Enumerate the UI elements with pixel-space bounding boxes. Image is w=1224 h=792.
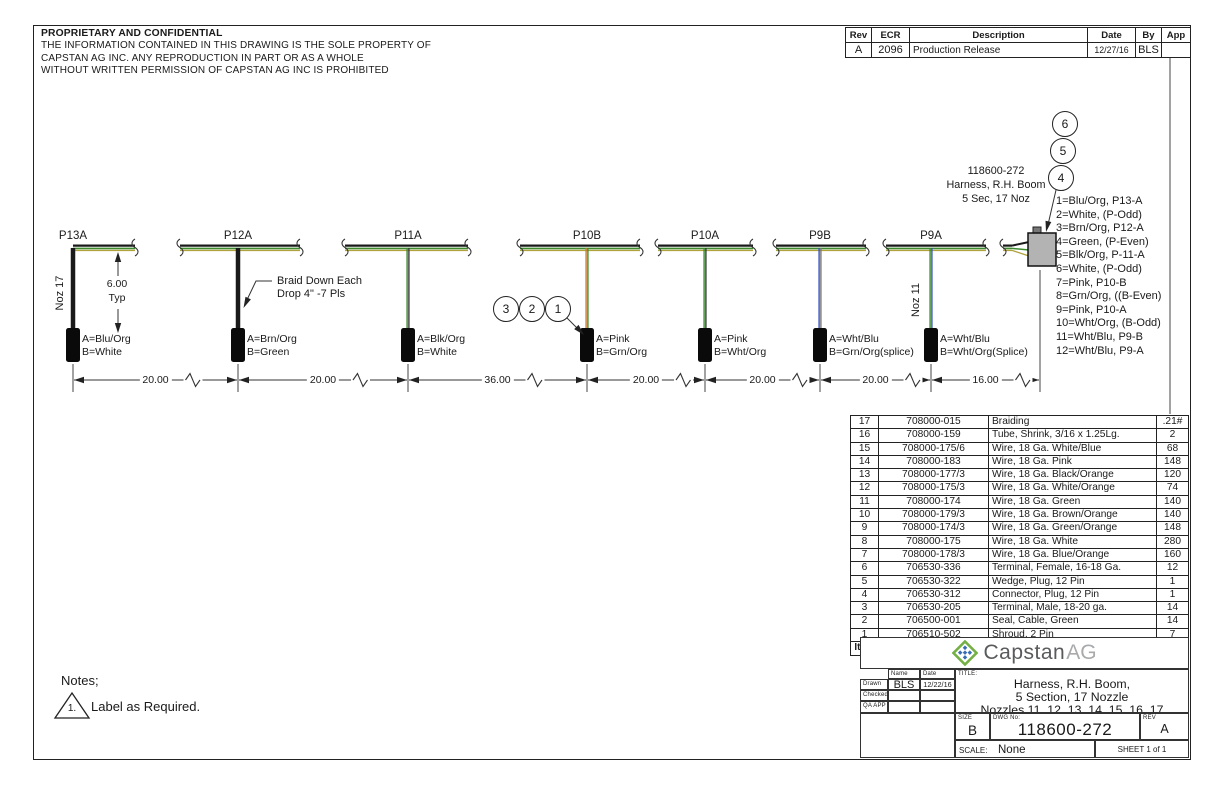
drawn-name-cell: BLS	[888, 679, 920, 690]
name-column-header: Name	[888, 669, 920, 679]
bom-cell: 148	[1157, 522, 1189, 535]
pin-list-entry: 9=Pink, P10-A	[1056, 304, 1161, 318]
drawn-label-cell: Drawn	[860, 679, 888, 690]
bom-cell: 706530-322	[879, 576, 989, 589]
drop-label: P11A	[394, 230, 421, 242]
rev-col-header: ECR	[872, 28, 910, 43]
rev-col-header: By	[1136, 28, 1162, 43]
bom-cell: Wire, 18 Ga. White/Orange	[989, 482, 1157, 495]
bom-cell: 140	[1157, 509, 1189, 522]
bom-cell: 140	[1157, 496, 1189, 509]
scale-value: None	[998, 744, 1026, 756]
bom-cell: Wire, 18 Ga. White/Blue	[989, 443, 1157, 456]
rev-col-header: Date	[1088, 28, 1136, 43]
harness-part-label: 118600-272 Harness, R.H. Boom 5 Sec, 17 …	[935, 164, 1057, 206]
bom-cell: 708000-015	[879, 416, 989, 429]
bom-cell: 4	[851, 589, 879, 602]
bill-of-materials-table: 17708000-015Braiding.21#16708000-159Tube…	[850, 415, 1189, 656]
wire-label-a: A=Pink	[596, 333, 630, 345]
bom-cell: 1	[1157, 576, 1189, 589]
bom-cell: 6	[851, 562, 879, 575]
pin-list-entry: 11=Wht/Blu, P9-B	[1056, 331, 1161, 345]
rev-value: A	[1141, 722, 1188, 736]
bom-cell: 9	[851, 522, 879, 535]
bom-cell: 708000-175/3	[879, 482, 989, 495]
dimension-value: 20.00	[746, 374, 778, 386]
dimension-value: 20.00	[139, 374, 171, 386]
wire-label-b: B=Grn/Org	[596, 346, 647, 358]
callout-balloon: 2	[519, 296, 545, 322]
rev-cell: 12/27/16	[1088, 43, 1136, 58]
callout-balloon: 1	[545, 296, 571, 322]
bom-cell: 12	[851, 482, 879, 495]
dimension-value: 16.00	[969, 374, 1001, 386]
bom-cell: 708000-177/3	[879, 469, 989, 482]
rev-cell: Production Release	[910, 43, 1088, 58]
bom-cell: Wire, 18 Ga. Brown/Orange	[989, 509, 1157, 522]
bom-cell: 148	[1157, 456, 1189, 469]
bom-cell: 14	[851, 456, 879, 469]
wire-label-b: B=Wht/Org(Splice)	[940, 346, 1028, 358]
bom-cell: 706530-312	[879, 589, 989, 602]
pin-list: 1=Blu/Org, P13-A2=White, (P-Odd)3=Brn/Or…	[1056, 195, 1161, 358]
bom-cell: 280	[1157, 536, 1189, 549]
drop-label: P9B	[809, 230, 831, 242]
harness-name: Harness, R.H. Boom	[935, 178, 1057, 192]
title-block: CapstanAG Name Date Drawn BLS 12/22/16 C…	[860, 637, 1189, 758]
sheet-cell: SHEET 1 of 1	[1095, 740, 1189, 758]
bom-cell: 708000-174	[879, 496, 989, 509]
pin-list-entry: 1=Blu/Org, P13-A	[1056, 195, 1161, 209]
checked-name-cell	[888, 690, 920, 701]
callout-balloon: 3	[493, 296, 519, 322]
bom-cell: 708000-174/3	[879, 522, 989, 535]
braid-note: Braid Down Each Drop 4" -7 Pls	[277, 275, 362, 301]
bom-cell: Terminal, Female, 16-18 Ga.	[989, 562, 1157, 575]
capstanag-logo: CapstanAG	[860, 637, 1189, 669]
bom-cell: Seal, Cable, Green	[989, 615, 1157, 628]
rev-col-header: App	[1162, 28, 1191, 43]
bom-cell: Wire, 18 Ga. Green	[989, 496, 1157, 509]
bom-cell: 160	[1157, 549, 1189, 562]
bom-cell: 5	[851, 576, 879, 589]
capstanag-logo-icon	[952, 640, 978, 666]
nozzle-17-label: Noz 17	[54, 268, 68, 318]
dimension-value: 20.00	[859, 374, 891, 386]
bom-cell: .21#	[1157, 416, 1189, 429]
note-triangle-marker: 1.	[60, 703, 84, 714]
wire-label-a: A=Pink	[714, 333, 748, 345]
bom-cell: 708000-159	[879, 429, 989, 442]
dwg-number-value: 118600-272	[991, 720, 1139, 740]
bom-cell: 17	[851, 416, 879, 429]
bom-cell: 8	[851, 536, 879, 549]
drawn-date-cell: 12/22/16	[920, 679, 955, 690]
rev-cell-block: REV A	[1140, 713, 1189, 740]
wire-label-a: A=Brn/Org	[247, 333, 297, 345]
bom-cell: 706530-205	[879, 602, 989, 615]
drawing-title-line: Nozzles 11, 12, 13, 14, 15, 16, 17	[956, 704, 1188, 713]
bom-cell: 706530-336	[879, 562, 989, 575]
drop-label: P13A	[59, 230, 87, 242]
pin-list-entry: 2=White, (P-Odd)	[1056, 209, 1161, 223]
drop-label: P10B	[573, 230, 601, 242]
wire-label-a: A=Wht/Blu	[829, 333, 879, 345]
wire-label-a: A=Wht/Blu	[940, 333, 990, 345]
bom-cell: 7	[851, 549, 879, 562]
pin-list-entry: 4=Green, (P-Even)	[1056, 236, 1161, 250]
pin-list-entry: 5=Blk/Org, P-11-A	[1056, 249, 1161, 263]
checked-label-cell: Checked	[860, 690, 888, 701]
harness-part-number: 118600-272	[935, 164, 1057, 178]
drop-label: P10A	[691, 230, 719, 242]
logo-text-capstan: Capstan	[983, 641, 1065, 665]
braid-note-line: Braid Down Each	[277, 275, 362, 288]
pin-list-entry: 8=Grn/Org, ((B-Even)	[1056, 290, 1161, 304]
bom-cell: 74	[1157, 482, 1189, 495]
proprietary-line: CAPSTAN AG INC. ANY REPRODUCTION IN PART…	[41, 53, 431, 65]
bom-cell: Terminal, Male, 18-20 ga.	[989, 602, 1157, 615]
proprietary-title: PROPRIETARY AND CONFIDENTIAL	[41, 28, 431, 40]
bom-cell: 2	[851, 615, 879, 628]
callout-balloon: 5	[1050, 138, 1076, 164]
rev-cell: 2096	[872, 43, 910, 58]
dwg-number-cell: DWG No: 118600-272	[990, 713, 1140, 740]
bom-cell: 3	[851, 602, 879, 615]
notes-heading: Notes;	[61, 673, 99, 688]
pin-list-entry: 7=Pink, P10-B	[1056, 277, 1161, 291]
proprietary-line: THE INFORMATION CONTAINED IN THIS DRAWIN…	[41, 40, 431, 52]
bom-cell: 11	[851, 496, 879, 509]
bom-cell: 16	[851, 429, 879, 442]
proprietary-note: PROPRIETARY AND CONFIDENTIAL THE INFORMA…	[41, 28, 431, 78]
empty-cell	[860, 713, 955, 758]
bom-cell: 14	[1157, 615, 1189, 628]
bom-cell: Wire, 18 Ga. White	[989, 536, 1157, 549]
pin-list-entry: 10=Wht/Org, (B-Odd)	[1056, 317, 1161, 331]
size-cell: SIZE B	[955, 713, 990, 740]
bom-cell: 14	[1157, 602, 1189, 615]
bom-cell: Wire, 18 Ga. Blue/Orange	[989, 549, 1157, 562]
bom-cell: Wire, 18 Ga. Black/Orange	[989, 469, 1157, 482]
scale-cell: SCALE: None	[955, 740, 1095, 758]
typ-dimension-label: Typ	[109, 292, 126, 304]
bom-cell: 708000-183	[879, 456, 989, 469]
wire-label-b: B=Green	[247, 346, 289, 358]
bom-cell: Tube, Shrink, 3/16 x 1.25Lg.	[989, 429, 1157, 442]
bom-cell: Connector, Plug, 12 Pin	[989, 589, 1157, 602]
bom-cell: 15	[851, 443, 879, 456]
qa-name-cell	[888, 701, 920, 713]
bom-cell: 68	[1157, 443, 1189, 456]
bom-cell: 12	[1157, 562, 1189, 575]
bom-cell: 708000-179/3	[879, 509, 989, 522]
rev-col-header: Rev	[846, 28, 872, 43]
bom-cell: 1	[1157, 589, 1189, 602]
bom-cell: 708000-175	[879, 536, 989, 549]
bom-cell: 10	[851, 509, 879, 522]
dimension-value: 20.00	[630, 374, 662, 386]
rev-col-header: Description	[910, 28, 1088, 43]
date-column-header: Date	[920, 669, 955, 679]
bom-cell: 2	[1157, 429, 1189, 442]
callout-balloon: 6	[1052, 111, 1078, 137]
revision-table: Rev ECR Description Date By App A 2096 P…	[845, 27, 1191, 58]
title-cell: TITLE: Harness, R.H. Boom, 5 Section, 17…	[955, 669, 1189, 713]
wire-label-b: B=Wht/Org	[714, 346, 766, 358]
bom-cell: 13	[851, 469, 879, 482]
bom-cell: Wedge, Plug, 12 Pin	[989, 576, 1157, 589]
checked-date-cell	[920, 690, 955, 701]
nozzle-11-label: Noz 11	[910, 275, 924, 325]
bom-cell: Braiding	[989, 416, 1157, 429]
pin-list-entry: 6=White, (P-Odd)	[1056, 263, 1161, 277]
bom-cell: Wire, 18 Ga. Pink	[989, 456, 1157, 469]
bom-cell: 120	[1157, 469, 1189, 482]
rev-cell	[1162, 43, 1191, 58]
wire-label-a: A=Blk/Org	[417, 333, 465, 345]
braid-note-line: Drop 4" -7 Pls	[277, 288, 362, 301]
wire-label-a: A=Blu/Org	[82, 333, 131, 345]
callout-balloon: 4	[1048, 165, 1074, 191]
dimension-value: 36.00	[481, 374, 513, 386]
harness-config: 5 Sec, 17 Noz	[935, 192, 1057, 206]
pin-list-entry: 3=Brn/Org, P12-A	[1056, 222, 1161, 236]
size-value: B	[956, 723, 989, 738]
qa-date-cell	[920, 701, 955, 713]
proprietary-line: WITHOUT WRITTEN PERMISSION OF CAPSTAN AG…	[41, 65, 431, 77]
pin-list-entry: 12=Wht/Blu, P9-A	[1056, 345, 1161, 359]
note-text: Label as Required.	[91, 699, 200, 714]
rev-cell: BLS	[1136, 43, 1162, 58]
bom-cell: 708000-178/3	[879, 549, 989, 562]
qa-app-label-cell: QA APP	[860, 701, 888, 713]
bom-cell: Wire, 18 Ga. Green/Orange	[989, 522, 1157, 535]
logo-text-ag: AG	[1066, 641, 1096, 665]
wire-label-b: B=Grn/Org(splice)	[829, 346, 914, 358]
engineering-drawing-sheet: PROPRIETARY AND CONFIDENTIAL THE INFORMA…	[0, 0, 1224, 792]
drop-label: P12A	[224, 230, 252, 242]
bom-cell: 706500-001	[879, 615, 989, 628]
bom-cell: 708000-175/6	[879, 443, 989, 456]
rev-cell: A	[846, 43, 872, 58]
typ-dimension-value: 6.00	[107, 278, 127, 290]
wire-label-b: B=White	[417, 346, 457, 358]
dimension-value: 20.00	[307, 374, 339, 386]
drop-label: P9A	[920, 230, 942, 242]
wire-label-b: B=White	[82, 346, 122, 358]
